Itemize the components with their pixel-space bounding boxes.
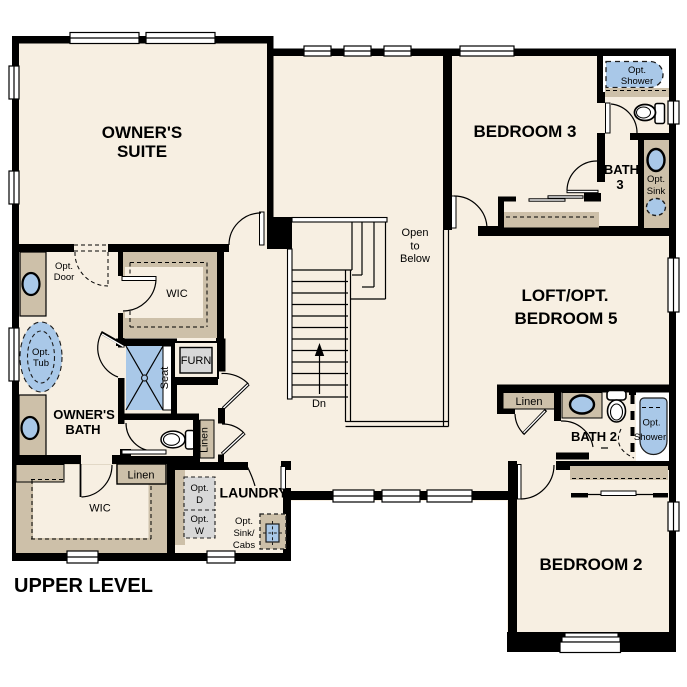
svg-text:Sink/: Sink/ [233,528,254,539]
svg-text:3: 3 [616,177,623,192]
svg-text:BEDROOM 2: BEDROOM 2 [540,555,643,574]
svg-text:Cabs: Cabs [233,540,255,551]
svg-text:Opt.: Opt. [32,347,50,358]
svg-text:BATH 2: BATH 2 [571,429,617,444]
svg-text:OWNER'S: OWNER'S [53,407,115,422]
svg-text:BEDROOM 5: BEDROOM 5 [515,309,618,328]
svg-text:to: to [410,241,419,253]
svg-text:Tub: Tub [33,358,49,369]
svg-text:Linen: Linen [199,427,211,453]
svg-text:FURN: FURN [181,355,212,367]
svg-text:BEDROOM 3: BEDROOM 3 [474,122,577,141]
svg-text:Opt.: Opt. [235,516,253,527]
svg-text:Door: Door [54,272,75,283]
svg-text:Dn: Dn [312,398,326,410]
svg-text:Opt.: Opt. [647,174,665,185]
svg-text:Open: Open [402,227,429,239]
svg-text:Linen: Linen [128,470,155,482]
svg-text:LOFT/OPT.: LOFT/OPT. [522,286,609,305]
svg-text:Below: Below [400,253,430,265]
svg-text:Opt.: Opt. [191,483,209,494]
svg-text:OWNER'S: OWNER'S [102,123,183,142]
svg-text:Opt.: Opt. [191,514,209,525]
svg-text:BATH: BATH [604,162,639,177]
svg-text:Sink: Sink [647,186,666,197]
svg-text:D: D [196,495,203,506]
svg-text:Opt.: Opt. [55,261,73,272]
svg-text:Shower: Shower [634,432,666,443]
svg-text:Seat: Seat [159,367,171,390]
svg-text:Opt.: Opt. [643,418,661,429]
svg-text:UPPER LEVEL: UPPER LEVEL [14,575,153,597]
svg-text:LAUNDRY: LAUNDRY [220,485,289,501]
svg-text:BATH: BATH [65,422,100,437]
svg-text:WIC: WIC [166,288,187,300]
svg-text:WIC: WIC [89,503,110,515]
svg-text:W: W [195,526,204,537]
svg-text:Opt.: Opt. [628,65,646,76]
svg-text:Linen: Linen [516,396,543,408]
svg-text:Shower: Shower [621,76,653,87]
svg-text:SUITE: SUITE [117,142,167,161]
